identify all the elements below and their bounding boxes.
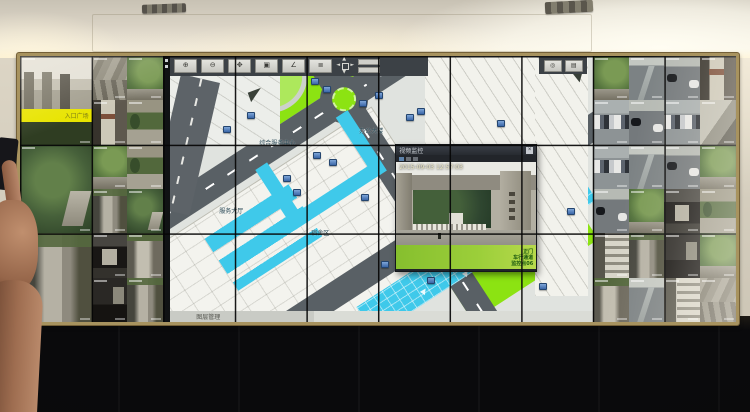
site-plan-right (535, 56, 588, 296)
osd-timestamp-mark (115, 229, 125, 231)
pan-down-icon[interactable]: ▼ (342, 70, 346, 75)
video-wall: 入口广场 (17, 53, 739, 325)
wall-monitor (664, 233, 736, 322)
camera-marker-icon[interactable] (329, 159, 337, 166)
pan-control[interactable]: ▲ ▼ ◄ ► (336, 57, 354, 75)
wall-monitor (92, 233, 164, 322)
snapshot-chip-icon[interactable] (406, 157, 411, 161)
osd-timestamp-mark (652, 141, 662, 143)
osd-text-mark (595, 102, 608, 104)
video-popup-window[interactable]: 视频监控 × 2015-09-03 12:57:03 (395, 144, 537, 272)
toolbar-zoom-in-button[interactable]: ⊕ (174, 59, 197, 73)
panel-mini-icon (165, 65, 168, 68)
osd-text-mark (22, 235, 35, 237)
camera-tile-alley[interactable] (20, 233, 92, 322)
osd-text-mark (129, 191, 142, 193)
popup-title: 视频监控 (399, 146, 423, 155)
osd-text-mark (631, 235, 644, 237)
osd-text-mark (94, 235, 107, 237)
osd-text-mark (129, 280, 142, 282)
osd-timestamp-mark (151, 318, 161, 320)
osd-text-mark (94, 102, 107, 104)
osd-timestamp-mark (688, 318, 698, 320)
osd-timestamp-mark (617, 229, 627, 231)
camera-tile-trees[interactable] (127, 56, 163, 100)
osd-timestamp-mark (80, 141, 90, 143)
map-status-bar: 图层管理 (170, 311, 593, 322)
right-camera-zone (593, 56, 736, 322)
camera-tile-parking[interactable] (664, 100, 700, 144)
wall-monitor (92, 56, 164, 145)
camera-tile-garden[interactable] (20, 145, 92, 234)
toolbar-legend-button[interactable] (358, 67, 380, 73)
panel-mini-icon (165, 59, 168, 62)
osd-text-mark (129, 58, 142, 60)
toolbar-locate-button[interactable]: ◎ (544, 60, 562, 72)
camera-tile-street[interactable] (629, 56, 665, 100)
camera-marker-icon[interactable] (313, 152, 321, 159)
osd-timestamp-mark (80, 229, 90, 231)
close-icon[interactable]: × (526, 147, 533, 154)
osd-text-mark (666, 191, 679, 193)
camera-tile-shop[interactable] (700, 56, 736, 100)
camera-marker-icon[interactable] (567, 208, 575, 215)
osd-timestamp-mark (151, 96, 161, 98)
osd-text-mark (702, 147, 715, 149)
toolbar-pan-button[interactable]: ✥ (228, 59, 251, 73)
osd-timestamp-mark (688, 185, 698, 187)
osd-timestamp-mark (80, 318, 90, 320)
camera-tile-alley[interactable] (629, 233, 665, 277)
pan-right-icon[interactable]: ► (350, 63, 354, 68)
camera-tile-ramp[interactable] (700, 100, 736, 144)
wall-monitor (20, 233, 92, 322)
osd-timestamp-mark (151, 185, 161, 187)
camera-tile-courtyard[interactable] (700, 189, 736, 233)
camera-tile-parking[interactable] (593, 100, 629, 144)
osd-text-mark (702, 58, 715, 60)
camera-marker-icon[interactable] (311, 78, 319, 85)
popup-video: 2015-09-03 12:57:03 正门车行通道监控点06 (396, 162, 536, 269)
camera-tile-gate[interactable]: 入口广场 (20, 56, 92, 145)
map-label: 宿舍区 (311, 228, 329, 237)
osd-text-mark (631, 280, 644, 282)
osd-timestamp-mark (724, 96, 734, 98)
osd-timestamp-mark (652, 96, 662, 98)
osd-text-mark (666, 280, 679, 282)
camera-tile-stairs[interactable] (664, 278, 700, 322)
status-bar-label: 图层管理 (196, 312, 220, 321)
wall-monitor (593, 145, 665, 234)
camera-marker-icon[interactable] (381, 261, 389, 268)
osd-text-mark (631, 147, 644, 149)
camera-tile-parking[interactable] (593, 145, 629, 189)
camera-marker-icon[interactable] (375, 92, 383, 99)
osd-timestamp-mark (724, 318, 734, 320)
map-zone: 综合服务中心办公大楼服务大厅宿舍区 ⊕⊖✥▣∠≣ ▲ ▼ ◄ ► (163, 56, 593, 322)
camera-tile-lane[interactable] (127, 233, 163, 277)
osd-timestamp-mark (617, 96, 627, 98)
toolbar-overview-button[interactable] (358, 59, 380, 65)
alert-bar: 入口广场 (20, 109, 92, 122)
camera-tile-street[interactable] (629, 145, 665, 189)
osd-timestamp-mark (688, 274, 698, 276)
toolbar-layers-button[interactable]: ≣ (309, 59, 332, 73)
video-osd-line: 监控点06 (511, 261, 533, 267)
osd-text-mark (595, 280, 608, 282)
osd-timestamp-mark (652, 318, 662, 320)
osd-text-mark (702, 191, 715, 193)
pedestrian (438, 233, 441, 239)
camera-tile-trees[interactable] (629, 189, 665, 233)
osd-text-mark (666, 235, 679, 237)
camera-tile-rooftops[interactable] (700, 278, 736, 322)
left-camera-zone: 入口广场 (20, 56, 163, 322)
osd-text-mark (702, 235, 715, 237)
camera-marker-icon[interactable] (223, 126, 231, 133)
camera-marker-icon[interactable] (247, 112, 255, 119)
camera-marker-icon[interactable] (359, 100, 367, 107)
camera-tile-streetcars[interactable] (593, 189, 629, 233)
osd-timestamp-mark (151, 274, 161, 276)
camera-tile-courtyard[interactable] (127, 100, 163, 144)
mini-button-stack (358, 59, 380, 73)
osd-timestamp-mark (724, 185, 734, 187)
camera-tile-interior[interactable] (664, 233, 700, 277)
toolbar-full-extent-button[interactable]: ▣ (255, 59, 278, 73)
camera-marker-icon[interactable] (323, 86, 331, 93)
osd-timestamp-mark (724, 229, 734, 231)
ceiling-vent-icon (545, 0, 594, 14)
camera-tile-garden[interactable] (127, 189, 163, 233)
osd-timestamp-mark (115, 318, 125, 320)
pan-up-icon[interactable]: ▲ (342, 57, 346, 62)
camera-tile-interior[interactable] (92, 278, 128, 322)
osd-timestamp-mark (724, 141, 734, 143)
toolbar-print-button[interactable]: ▤ (565, 60, 583, 72)
ceiling-recess (92, 14, 592, 52)
video-osd-text: 正门车行通道监控点06 (511, 249, 533, 267)
osd-timestamp-mark (688, 229, 698, 231)
osd-timestamp-mark (652, 274, 662, 276)
camera-tile-trees[interactable] (92, 145, 128, 189)
osd-text-mark (631, 191, 644, 193)
lower-wall (0, 316, 750, 412)
osd-text-mark (22, 58, 35, 60)
osd-text-mark (129, 102, 142, 104)
osd-timestamp-mark (151, 229, 161, 231)
wall-monitor: 入口广场 (20, 56, 92, 145)
osd-text-mark (595, 58, 608, 60)
toolbar-zoom-out-button[interactable]: ⊖ (201, 59, 224, 73)
osd-text-mark (631, 102, 644, 104)
popup-title-bar[interactable]: 视频监控 × (396, 145, 536, 155)
camera-marker-icon[interactable] (293, 189, 301, 196)
camera-tile-streetcars[interactable] (629, 100, 665, 144)
osd-text-mark (129, 147, 142, 149)
pan-center-icon[interactable] (342, 63, 349, 70)
osd-text-mark (595, 147, 608, 149)
camera-tile-alley[interactable] (92, 189, 128, 233)
ceiling-vent-icon (142, 3, 186, 14)
wall-monitor (92, 145, 164, 234)
camera-marker-icon[interactable] (417, 108, 425, 115)
audio-chip-icon[interactable] (413, 157, 418, 161)
record-chip-icon[interactable] (399, 157, 404, 161)
osd-text-mark (94, 280, 107, 282)
toolbar-measure-button[interactable]: ∠ (282, 59, 305, 73)
osd-text-mark (631, 58, 644, 60)
osd-text-mark (666, 58, 679, 60)
osd-timestamp-mark (688, 96, 698, 98)
osd-text-mark (595, 191, 608, 193)
camera-tile-trees[interactable] (593, 56, 629, 100)
camera-marker-icon[interactable] (283, 175, 291, 182)
wall-monitor (664, 56, 736, 145)
osd-text-mark (129, 235, 142, 237)
wall-monitor (593, 56, 665, 145)
osd-timestamp-mark (115, 274, 125, 276)
alert-bar-label: 入口广场 (65, 111, 89, 120)
camera-tile-streetcars[interactable] (664, 56, 700, 100)
video-timestamp: 2015-09-03 12:57:03 (399, 164, 463, 171)
osd-text-mark (702, 280, 715, 282)
wall-monitor (20, 145, 92, 234)
osd-timestamp-mark (151, 141, 161, 143)
camera-tile-rooftops[interactable] (92, 56, 128, 100)
camera-tile-shop[interactable] (92, 100, 128, 144)
osd-text-mark (666, 102, 679, 104)
osd-timestamp-mark (617, 318, 627, 320)
osd-timestamp-mark (652, 185, 662, 187)
osd-text-mark (702, 102, 715, 104)
wall-monitor (664, 145, 736, 234)
osd-timestamp-mark (688, 141, 698, 143)
camera-tile-stairs[interactable] (593, 233, 629, 277)
osd-text-mark (595, 235, 608, 237)
osd-timestamp-mark (115, 141, 125, 143)
osd-timestamp-mark (724, 274, 734, 276)
camera-marker-icon[interactable] (361, 194, 369, 201)
camera-marker-icon[interactable] (406, 114, 414, 121)
osd-timestamp-mark (115, 96, 125, 98)
osd-text-mark (94, 191, 107, 193)
site-plan-upper-right (425, 56, 535, 144)
osd-timestamp-mark (617, 274, 627, 276)
map-toolbar-right: ◎▤ (539, 57, 587, 74)
map-label: 办公大楼 (359, 126, 383, 135)
osd-timestamp-mark (115, 185, 125, 187)
camera-tile-street[interactable] (629, 278, 665, 322)
control-room-photo: 入口广场 (0, 0, 750, 412)
wall-monitor (593, 233, 665, 322)
map-toolbar: ⊕⊖✥▣∠≣ ▲ ▼ ◄ ► (170, 56, 428, 76)
camera-tile-courtyard[interactable] (127, 145, 163, 189)
camera-marker-icon[interactable] (539, 283, 547, 290)
map-label: 综合服务中心 (259, 138, 295, 147)
camera-tile-garage[interactable] (664, 189, 700, 233)
camera-tile-streetcars[interactable] (664, 145, 700, 189)
osd-text-mark (666, 147, 679, 149)
osd-timestamp-mark (652, 229, 662, 231)
popup-tool-strip (396, 155, 536, 162)
gis-side-panel[interactable] (163, 56, 170, 322)
pan-left-icon[interactable]: ◄ (336, 63, 340, 68)
video-wall-screens: 入口广场 (20, 56, 736, 322)
camera-tile-trees[interactable] (700, 145, 736, 189)
map-label: 服务大厅 (219, 206, 243, 215)
osd-text-mark (94, 147, 107, 149)
camera-tile-garage[interactable] (92, 233, 128, 277)
osd-timestamp-mark (617, 185, 627, 187)
camera-tile-lane[interactable] (593, 278, 629, 322)
camera-marker-icon[interactable] (497, 120, 505, 127)
osd-timestamp-mark (617, 141, 627, 143)
camera-marker-icon[interactable] (427, 277, 435, 284)
osd-text-mark (94, 58, 107, 60)
camera-tile-alley[interactable] (127, 278, 163, 322)
camera-tile-trees[interactable] (700, 233, 736, 277)
osd-text-mark (22, 147, 35, 149)
